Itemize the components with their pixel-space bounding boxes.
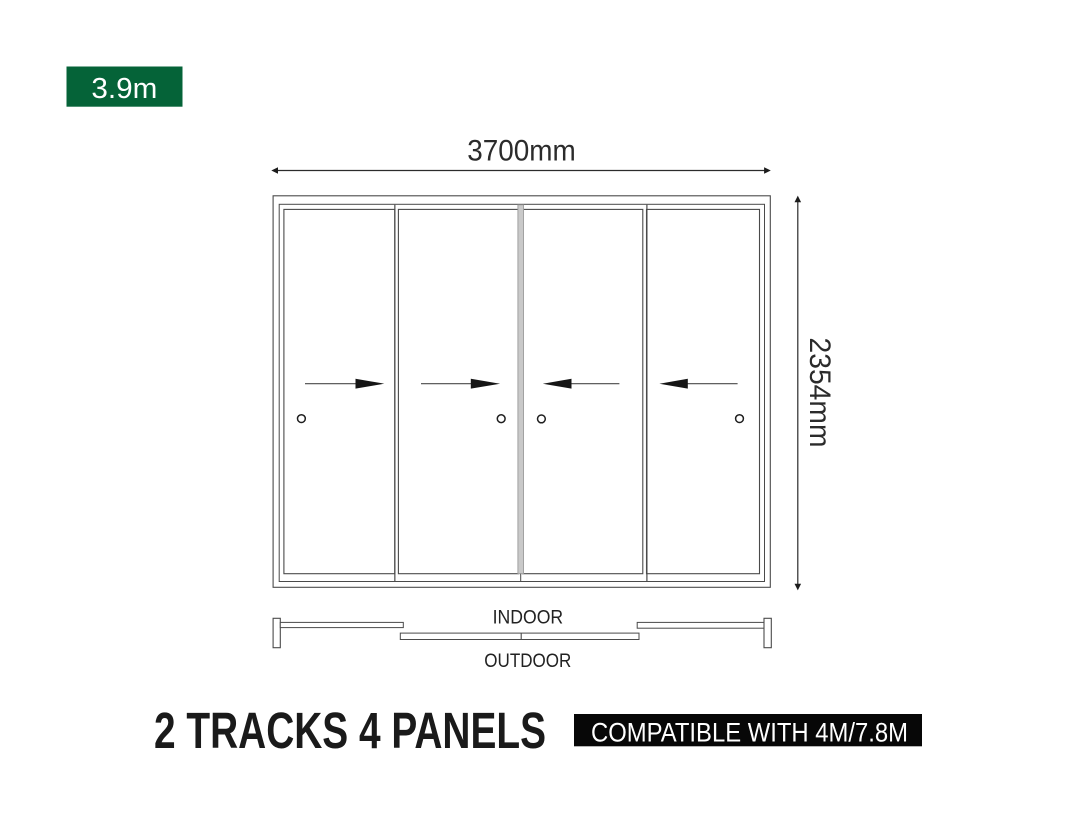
svg-text:COMPATIBLE WITH 4M/7.8M: COMPATIBLE WITH 4M/7.8M (591, 717, 908, 747)
svg-text:2 TRACKS 4 PANELS: 2 TRACKS 4 PANELS (154, 702, 546, 759)
svg-text:3700mm: 3700mm (467, 135, 576, 168)
svg-text:INDOOR: INDOOR (493, 607, 564, 628)
svg-text:OUTDOOR: OUTDOOR (484, 651, 571, 672)
svg-text:3.9m: 3.9m (91, 72, 157, 104)
svg-text:2354mm: 2354mm (803, 338, 836, 448)
